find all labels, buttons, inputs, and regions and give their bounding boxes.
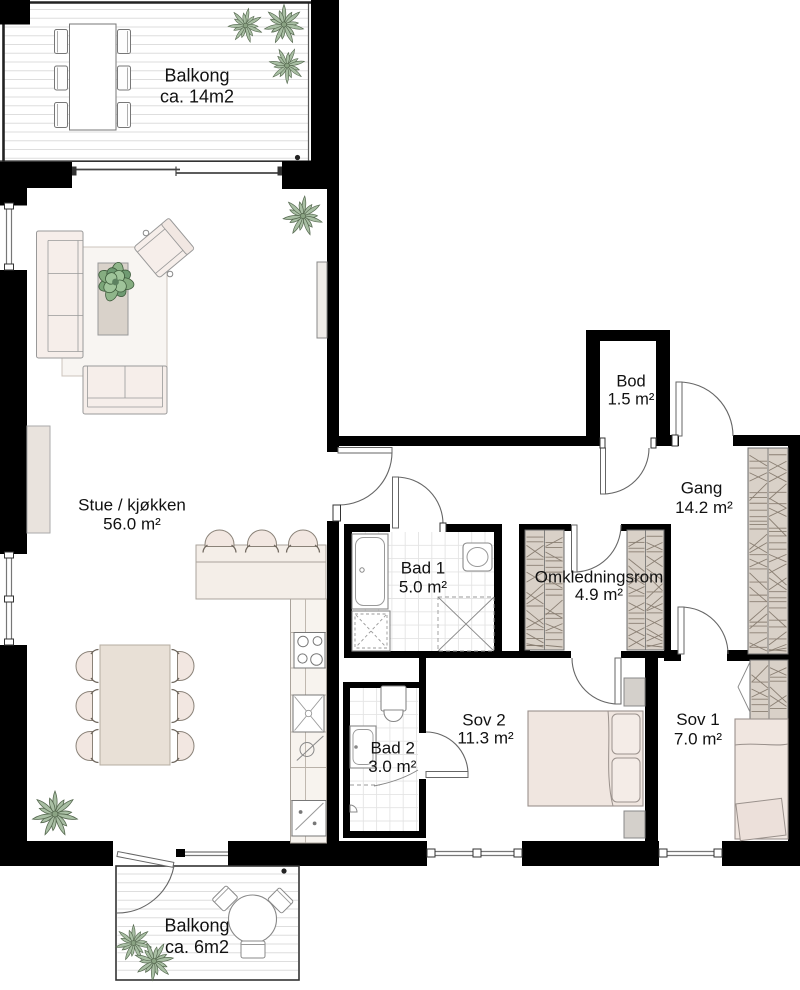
svg-text:Sov 2: Sov 2 bbox=[462, 711, 505, 730]
svg-text:4.9 m²: 4.9 m² bbox=[575, 585, 624, 604]
svg-text:Gang: Gang bbox=[681, 479, 723, 498]
svg-text:3.0 m²: 3.0 m² bbox=[368, 757, 417, 776]
svg-text:1.5 m²: 1.5 m² bbox=[608, 391, 655, 409]
svg-text:Bad 1: Bad 1 bbox=[401, 559, 445, 578]
svg-text:ca. 6m2: ca. 6m2 bbox=[165, 937, 229, 957]
svg-text:14.2 m²: 14.2 m² bbox=[675, 498, 733, 517]
svg-text:Balkong: Balkong bbox=[164, 66, 229, 86]
svg-text:7.0 m²: 7.0 m² bbox=[674, 730, 723, 749]
svg-text:Sov 1: Sov 1 bbox=[676, 710, 719, 729]
svg-text:11.3 m²: 11.3 m² bbox=[457, 729, 514, 748]
svg-text:5.0 m²: 5.0 m² bbox=[399, 578, 448, 597]
svg-text:Bod: Bod bbox=[616, 373, 645, 391]
svg-text:Omkledningsrom: Omkledningsrom bbox=[535, 568, 664, 587]
svg-text:Bad 2: Bad 2 bbox=[370, 739, 414, 758]
svg-text:ca. 14m2: ca. 14m2 bbox=[160, 87, 234, 107]
svg-text:56.0 m²: 56.0 m² bbox=[103, 515, 161, 534]
svg-text:Stue / kjøkken: Stue / kjøkken bbox=[78, 496, 186, 515]
svg-text:Balkong: Balkong bbox=[164, 916, 229, 936]
